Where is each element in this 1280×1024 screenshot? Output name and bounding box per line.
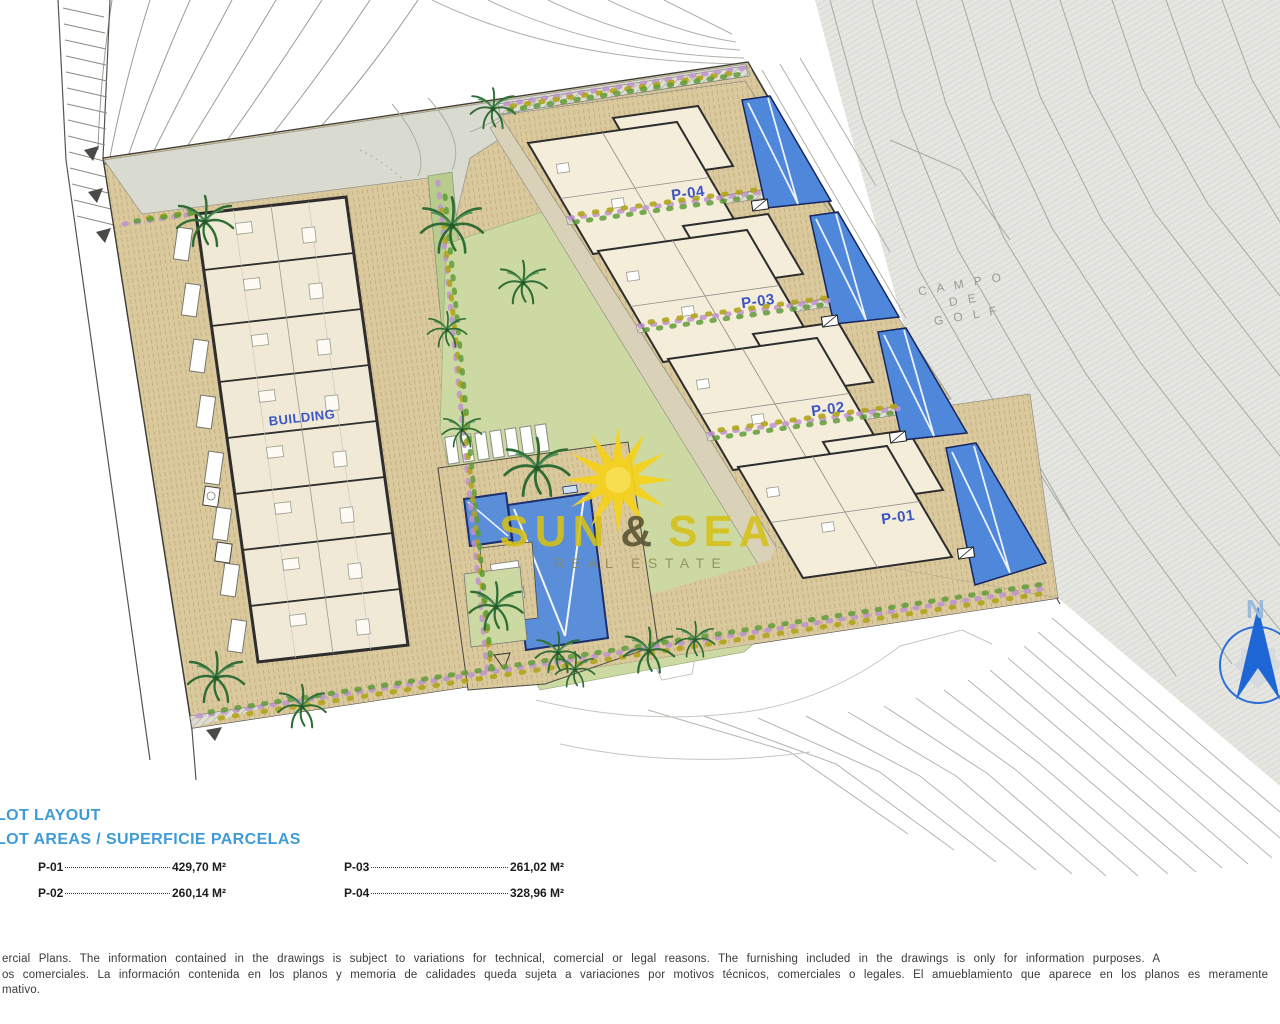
plot-area-row-p01: P-01 429,70 M² bbox=[38, 860, 226, 876]
plot-area-label: P-02 bbox=[38, 886, 63, 900]
plot-area-label: P-01 bbox=[38, 860, 63, 874]
watermark-subtitle: REAL ESTATE bbox=[554, 555, 729, 571]
plot-area-row-p03: P-03 261,02 M² bbox=[344, 860, 564, 876]
disclaimer-line-2: os comerciales. La información contenida… bbox=[2, 968, 1280, 984]
plot-areas-column-1: P-01 429,70 M² P-02 260,14 M² bbox=[38, 860, 226, 912]
watermark-name: SUN&SEA bbox=[499, 507, 776, 556]
dotted-leader bbox=[371, 867, 508, 868]
plot-area-label: P-04 bbox=[344, 886, 369, 900]
pool-steps bbox=[563, 485, 578, 494]
disclaimer-line-3: mativo. bbox=[2, 983, 1280, 999]
dotted-leader bbox=[65, 867, 170, 868]
watermark-sea-word: SEA bbox=[668, 507, 776, 556]
site-plan-page: C A M P O D E G O L F bbox=[0, 0, 1280, 1024]
plot-area-value: 261,02 M² bbox=[510, 860, 564, 874]
plot-area-value: 328,96 M² bbox=[510, 886, 564, 900]
corner-marker bbox=[206, 727, 222, 741]
disclaimer-block: ercial Plans. The information contained … bbox=[2, 952, 1280, 999]
dotted-leader bbox=[65, 893, 170, 894]
plot-areas-column-2: P-03 261,02 M² P-04 328,96 M² bbox=[344, 860, 564, 912]
plot-area-value: 260,14 M² bbox=[172, 886, 226, 900]
plot-area-value: 429,70 M² bbox=[172, 860, 226, 874]
legend-title-plot-layout: LOT LAYOUT bbox=[0, 808, 101, 824]
watermark-ampersand: & bbox=[620, 507, 658, 556]
plot-area-row-p02: P-02 260,14 M² bbox=[38, 886, 226, 902]
watermark-sun-word: SUN bbox=[499, 507, 610, 556]
plot-area-label: P-03 bbox=[344, 860, 369, 874]
plot-area-row-p04: P-04 328,96 M² bbox=[344, 886, 564, 902]
disclaimer-line-1: ercial Plans. The information contained … bbox=[2, 952, 1280, 968]
compass-north-label: N bbox=[1246, 594, 1265, 624]
dotted-leader bbox=[371, 893, 508, 894]
legend-title-plot-areas: LOT AREAS / SUPERFICIE PARCELAS bbox=[0, 832, 301, 848]
